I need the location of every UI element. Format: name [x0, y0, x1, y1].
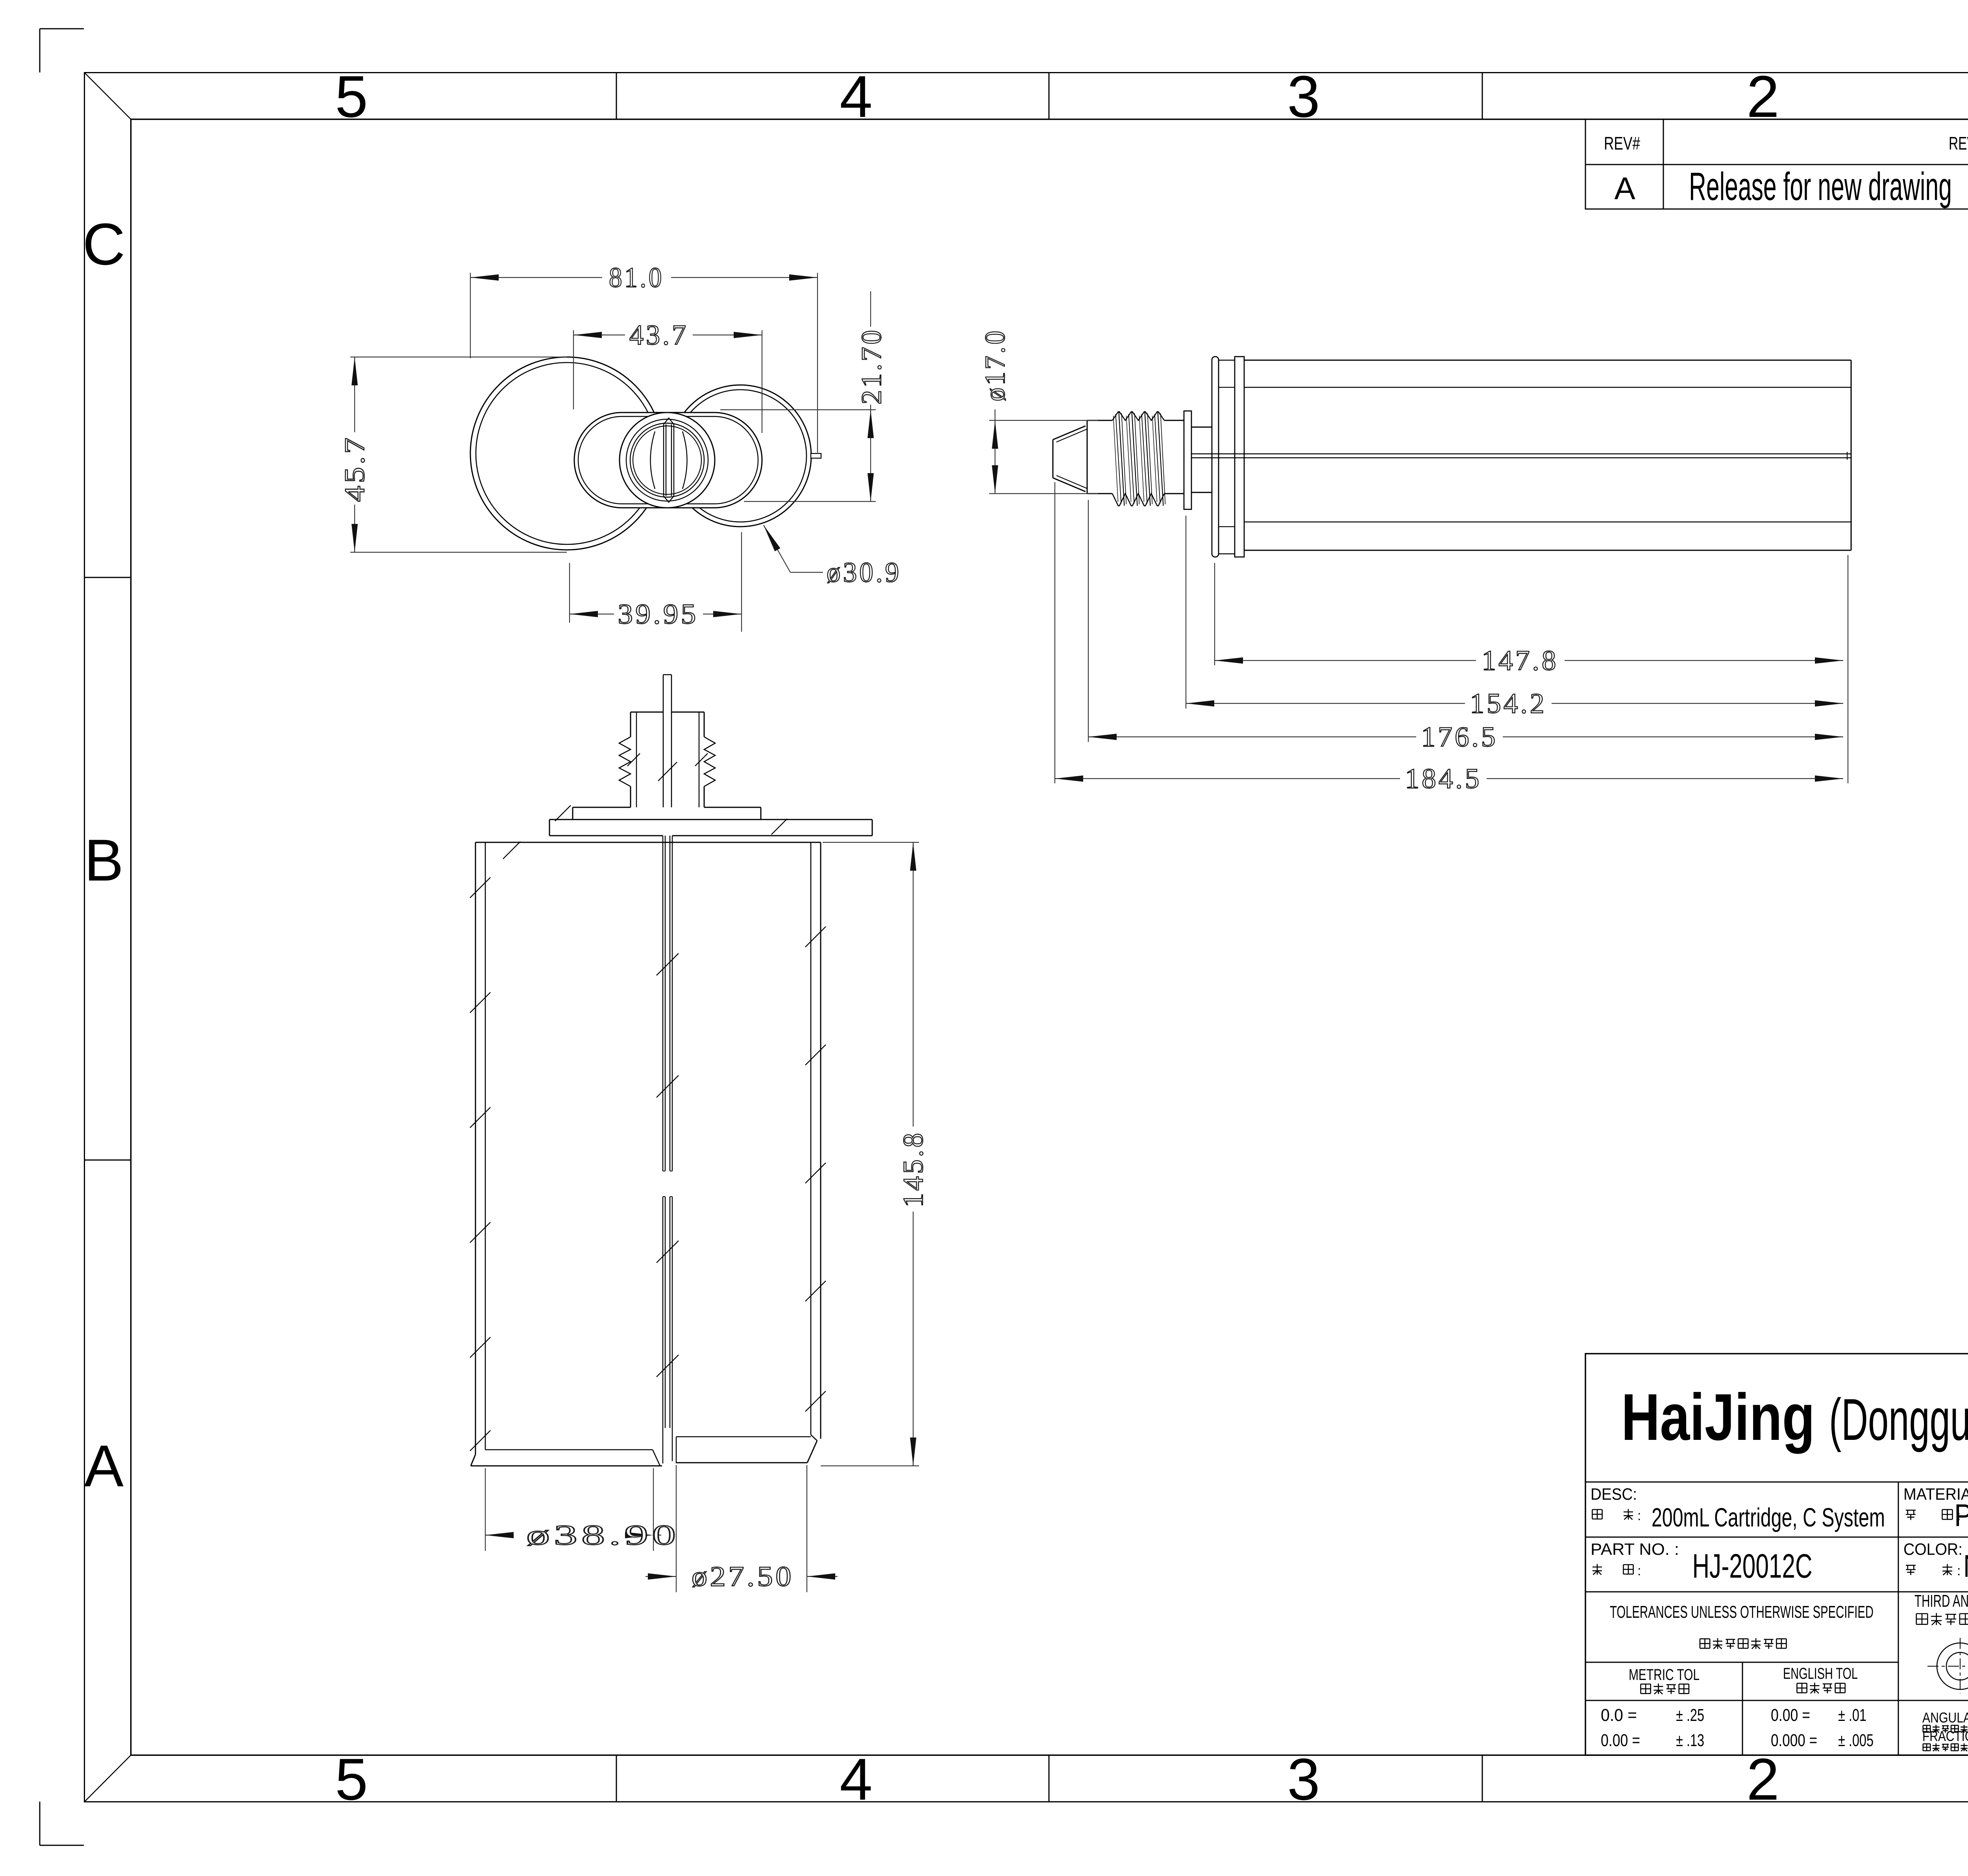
svg-text:TOLERANCES UNLESS OTHERWISE SP: TOLERANCES UNLESS OTHERWISE SPECIFIED — [1610, 1602, 1874, 1622]
svg-text:2: 2 — [1746, 1746, 1779, 1812]
svg-text:HaiJing: HaiJing — [1621, 1380, 1815, 1454]
svg-text:COLOR:: COLOR: — [1903, 1540, 1962, 1558]
svg-text:43.7: 43.7 — [629, 319, 688, 351]
svg-text:PART NO. :: PART NO. : — [1591, 1540, 1679, 1558]
svg-text:3: 3 — [1287, 1746, 1320, 1812]
svg-text:± .13: ± .13 — [1676, 1731, 1704, 1750]
svg-text:81.0: 81.0 — [609, 262, 664, 293]
svg-text::: : — [1637, 1563, 1641, 1578]
svg-text:PP/PA/PBT: PP/PA/PBT — [1954, 1498, 1968, 1533]
svg-text:154.2: 154.2 — [1470, 688, 1547, 719]
svg-text:Natureal: Natureal — [1963, 1549, 1968, 1584]
svg-text:ø30.9: ø30.9 — [827, 557, 901, 588]
svg-text:3: 3 — [1287, 63, 1320, 130]
svg-text:C: C — [83, 211, 125, 277]
svg-text:REVISIONS: REVISIONS — [1949, 133, 1968, 154]
svg-text:176.5: 176.5 — [1421, 721, 1498, 753]
svg-text:REV#: REV# — [1604, 133, 1640, 154]
svg-text:Release for new drawing: Release for new drawing — [1689, 165, 1952, 209]
svg-text:ø38.90: ø38.90 — [526, 1519, 680, 1551]
svg-text:0.00 =: 0.00 = — [1771, 1706, 1810, 1725]
svg-text:ENGLISH TOL: ENGLISH TOL — [1783, 1665, 1858, 1682]
svg-text:METRIC TOL: METRIC TOL — [1629, 1666, 1700, 1684]
svg-text:5: 5 — [335, 63, 368, 130]
svg-text:4: 4 — [840, 63, 872, 130]
svg-text:A: A — [84, 1433, 124, 1499]
svg-text:ANGULAR TOL: ANGULAR TOL — [1922, 1709, 1968, 1726]
svg-text:0.0 =: 0.0 = — [1601, 1706, 1637, 1725]
svg-text:HJ-20012C: HJ-20012C — [1692, 1547, 1813, 1585]
svg-text:B: B — [84, 827, 124, 893]
svg-text:184.5: 184.5 — [1405, 763, 1482, 794]
svg-text:0.00 =: 0.00 = — [1601, 1731, 1640, 1750]
svg-text:147.8: 147.8 — [1482, 645, 1559, 676]
svg-text:5: 5 — [335, 1746, 368, 1812]
svg-text:± .005: ± .005 — [1838, 1731, 1874, 1750]
svg-text:200mL Cartridge, C System: 200mL Cartridge, C System — [1652, 1503, 1885, 1532]
svg-text:ø17.0: ø17.0 — [979, 329, 1011, 401]
svg-text:FRACTION TOL: FRACTION TOL — [1922, 1728, 1968, 1744]
svg-text:THIRD ANGLE PROJECTION: THIRD ANGLE PROJECTION — [1914, 1591, 1968, 1611]
svg-text::: : — [1637, 1508, 1641, 1523]
svg-text:21.70: 21.70 — [856, 328, 887, 405]
svg-text:± .01: ± .01 — [1838, 1706, 1866, 1725]
svg-text::: : — [1957, 1563, 1961, 1578]
svg-text:4: 4 — [840, 1746, 872, 1812]
svg-text:DESC:: DESC: — [1591, 1485, 1637, 1503]
svg-text:45.7: 45.7 — [339, 435, 370, 502]
svg-text:ø27.50: ø27.50 — [692, 1561, 794, 1592]
svg-text:39.95: 39.95 — [618, 598, 699, 630]
svg-text:0.000 =: 0.000 = — [1771, 1731, 1817, 1750]
svg-text:(Dongguan) Bonding Technology: (Dongguan) Bonding Technology Co., Ltd — [1829, 1386, 1968, 1452]
svg-text:145.8: 145.8 — [897, 1131, 929, 1208]
svg-text:A: A — [1614, 171, 1635, 206]
svg-text:± .25: ± .25 — [1676, 1706, 1704, 1725]
